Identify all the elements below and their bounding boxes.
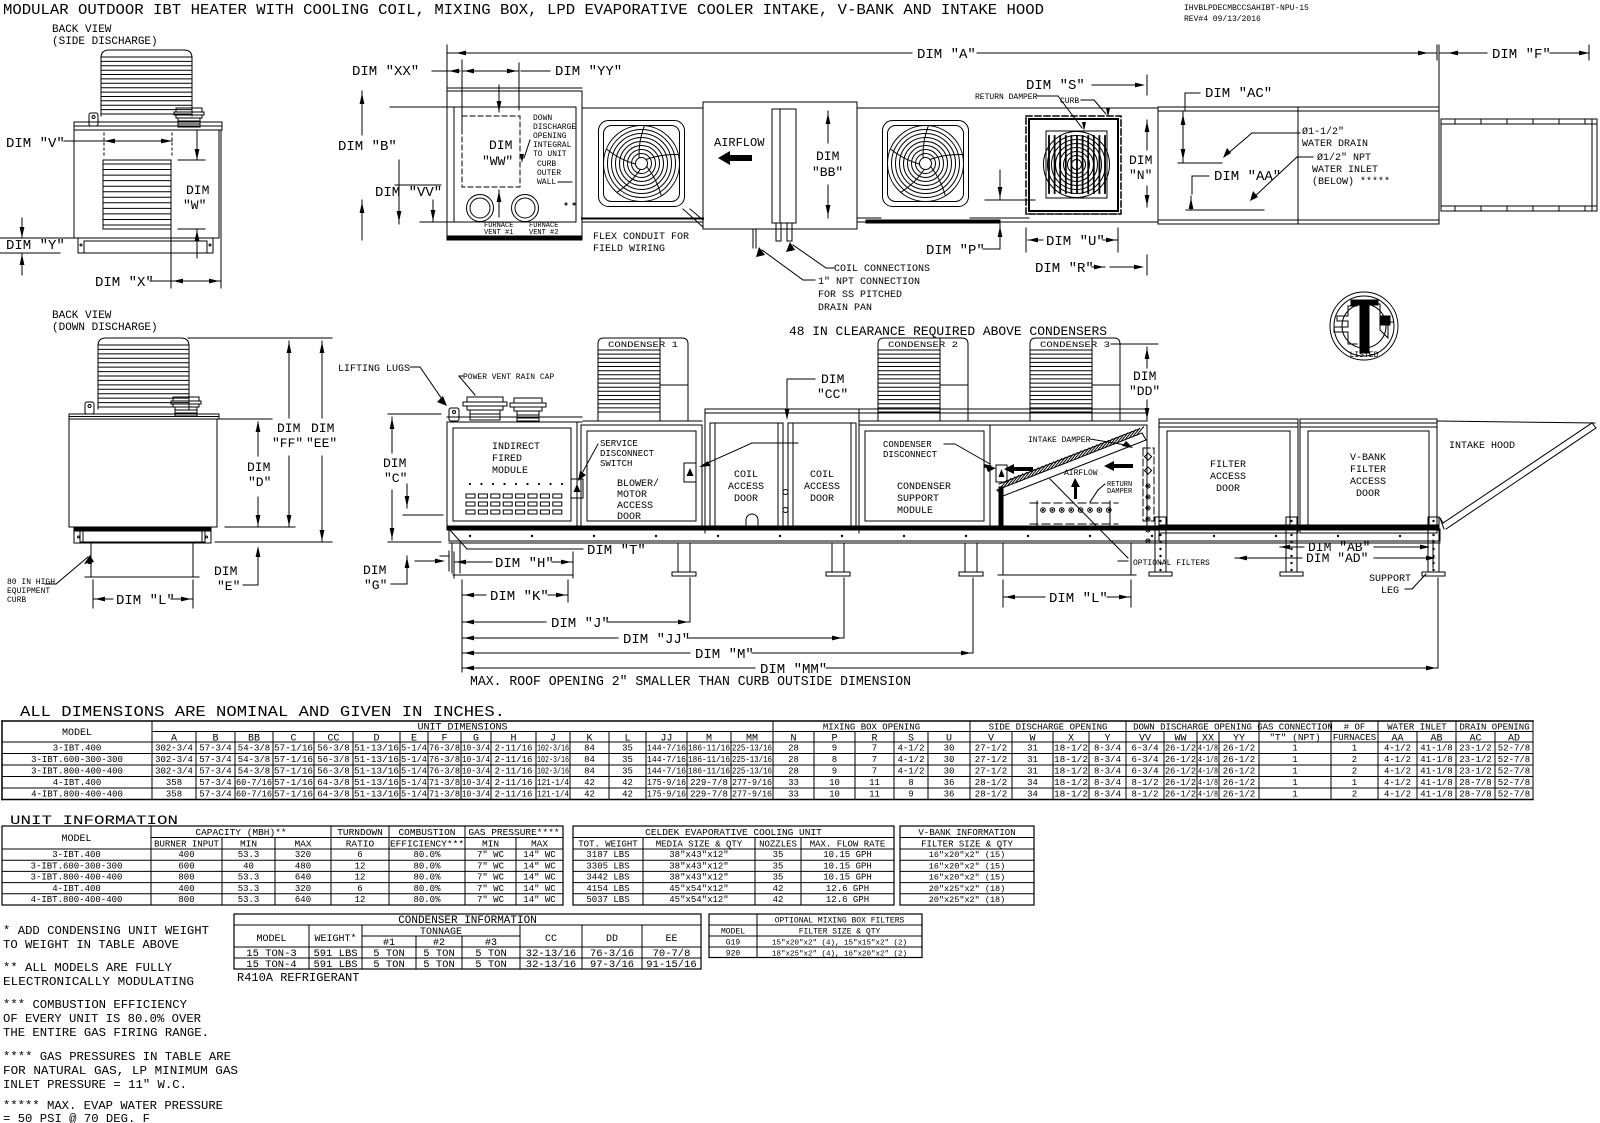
svg-text:DIM "S": DIM "S": [1026, 78, 1085, 94]
svg-text:TONNAGE: TONNAGE: [420, 927, 462, 938]
svg-text:26-1/2: 26-1/2: [1165, 744, 1196, 754]
svg-text:DOOR: DOOR: [734, 494, 758, 505]
svg-text:32-13/16: 32-13/16: [526, 959, 576, 971]
svg-text:TOT. WEIGHT: TOT. WEIGHT: [578, 840, 638, 850]
svg-text:FURNACES: FURNACES: [1333, 733, 1376, 743]
svg-text:"WW": "WW": [482, 154, 513, 169]
svg-text:600: 600: [178, 861, 194, 871]
svg-text:ALL DIMENSIONS ARE NOMINAL AND: ALL DIMENSIONS ARE NOMINAL AND GIVEN IN …: [20, 704, 505, 721]
svg-text:4-1/2: 4-1/2: [897, 744, 924, 754]
svg-text:5037 LBS: 5037 LBS: [586, 895, 629, 905]
svg-text:277-9/16: 277-9/16: [732, 790, 772, 800]
svg-text:DIM: DIM: [821, 372, 844, 387]
svg-text:91-15/16: 91-15/16: [646, 959, 696, 971]
svg-text:28-7/8: 28-7/8: [1459, 778, 1491, 788]
svg-text:"D": "D": [248, 475, 271, 490]
svg-text:53.3: 53.3: [238, 884, 260, 894]
svg-text:MEDIA SIZE & QTY: MEDIA SIZE & QTY: [656, 840, 743, 850]
svg-text:SERVICE: SERVICE: [600, 439, 638, 449]
svg-text:= 50 PSI @ 70 DEG. F: = 50 PSI @ 70 DEG. F: [3, 1112, 150, 1123]
svg-text:51-13/16: 51-13/16: [354, 778, 399, 788]
svg-text:DIM "P": DIM "P": [926, 243, 985, 259]
svg-text:57-1/16: 57-1/16: [274, 744, 313, 754]
svg-text:54-3/8: 54-3/8: [238, 767, 270, 777]
svg-text:V-BANK: V-BANK: [1350, 453, 1386, 464]
svg-text:DIM "L": DIM "L": [1049, 591, 1108, 607]
svg-text:WATER INLET: WATER INLET: [1312, 165, 1378, 176]
svg-text:7" WC: 7" WC: [477, 895, 505, 905]
svg-text:52-7/8: 52-7/8: [1498, 755, 1530, 765]
svg-text:MIXING BOX OPENING: MIXING BOX OPENING: [823, 723, 920, 733]
svg-text:7: 7: [872, 767, 877, 777]
svg-text:DIM: DIM: [1129, 153, 1152, 168]
svg-text:640: 640: [295, 895, 311, 905]
svg-text:51-13/16: 51-13/16: [354, 767, 399, 777]
svg-text:8: 8: [832, 755, 837, 765]
svg-text:GAS PRESSURE****: GAS PRESSURE****: [468, 827, 559, 838]
svg-text:FILTER SIZE & QTY: FILTER SIZE & QTY: [799, 928, 881, 937]
svg-text:4-1/2: 4-1/2: [1384, 744, 1411, 754]
svg-text:DIM "JJ": DIM "JJ": [623, 632, 690, 648]
svg-text:320: 320: [295, 884, 311, 894]
svg-text:4154 LBS: 4154 LBS: [586, 884, 629, 894]
svg-text:DRAIN PAN: DRAIN PAN: [818, 303, 872, 314]
svg-text:52-7/8: 52-7/8: [1498, 778, 1530, 788]
svg-text:28: 28: [788, 755, 799, 765]
svg-text:26-1/2: 26-1/2: [1165, 778, 1196, 788]
svg-text:**** GAS PRESSURES IN TABLE AR: **** GAS PRESSURES IN TABLE ARE: [3, 1050, 231, 1064]
svg-text:52-7/8: 52-7/8: [1498, 744, 1530, 754]
svg-text:R410A REFRIGERANT: R410A REFRIGERANT: [237, 971, 359, 985]
svg-text:800: 800: [178, 873, 194, 883]
svg-text:229-7/8: 229-7/8: [690, 790, 728, 800]
svg-text:57-1/16: 57-1/16: [274, 778, 313, 788]
svg-text:DIM "VV": DIM "VV": [375, 185, 442, 201]
svg-text:40: 40: [243, 861, 254, 871]
svg-text:28-1/2: 28-1/2: [975, 778, 1007, 788]
svg-text:3-IBT.800-400-400: 3-IBT.800-400-400: [31, 873, 123, 883]
svg-text:"W": "W": [183, 198, 206, 213]
svg-text:AIRFLOW: AIRFLOW: [714, 136, 765, 150]
svg-text:18-1/2: 18-1/2: [1054, 778, 1088, 788]
svg-text:56-3/8: 56-3/8: [317, 744, 349, 754]
svg-text:186-11/16: 186-11/16: [688, 767, 730, 777]
svg-text:"G": "G": [364, 578, 387, 593]
svg-text:57-1/16: 57-1/16: [274, 767, 313, 777]
svg-text:LISTED: LISTED: [1350, 351, 1379, 360]
svg-text:71-3/8: 71-3/8: [429, 790, 460, 800]
svg-text:18-1/2: 18-1/2: [1054, 755, 1088, 765]
svg-text:56-3/8: 56-3/8: [317, 767, 349, 777]
svg-text:4-1/2: 4-1/2: [897, 755, 924, 765]
svg-text:CURB: CURB: [1060, 97, 1079, 106]
svg-text:AIRFLOW: AIRFLOW: [1064, 469, 1098, 478]
svg-text:COIL: COIL: [810, 470, 834, 481]
svg-text:51-13/16: 51-13/16: [354, 744, 399, 754]
svg-text:DIM: DIM: [1133, 369, 1156, 384]
svg-text:8-1/2: 8-1/2: [1131, 778, 1158, 788]
svg-text:MODULE: MODULE: [492, 466, 528, 477]
svg-text:41-1/8: 41-1/8: [1420, 744, 1452, 754]
svg-text:MAX. ROOF OPENING 2" SMALLER T: MAX. ROOF OPENING 2" SMALLER THAN CURB O…: [470, 674, 911, 690]
svg-text:WATER INLET: WATER INLET: [1387, 723, 1447, 733]
svg-text:33: 33: [788, 778, 799, 788]
svg-text:10: 10: [829, 790, 840, 800]
svg-text:4-1/2: 4-1/2: [1384, 767, 1411, 777]
svg-text:80.0%: 80.0%: [413, 861, 441, 871]
svg-text:DIM: DIM: [489, 138, 512, 153]
svg-text:REV#4 09/13/2016: REV#4 09/13/2016: [1184, 15, 1261, 24]
svg-text:4-1/2: 4-1/2: [1384, 790, 1411, 800]
svg-text:10-3/4: 10-3/4: [462, 744, 490, 754]
svg-text:OF EVERY UNIT IS 80.0% OVER: OF EVERY UNIT IS 80.0% OVER: [3, 1012, 201, 1026]
svg-text:DOOR: DOOR: [1356, 489, 1380, 500]
svg-text:34: 34: [1027, 790, 1038, 800]
svg-text:1" NPT CONNECTION: 1" NPT CONNECTION: [818, 276, 920, 288]
svg-text:FILTER: FILTER: [1210, 460, 1246, 471]
svg-text:DIM "F": DIM "F": [1492, 47, 1551, 63]
svg-text:71-3/8: 71-3/8: [429, 778, 460, 788]
svg-text:14" WC: 14" WC: [523, 884, 556, 894]
svg-text:6: 6: [357, 850, 362, 860]
svg-text:"CC": "CC": [817, 387, 848, 402]
svg-text:SIDE DISCHARGE OPENING: SIDE DISCHARGE OPENING: [989, 723, 1108, 733]
svg-text:CC: CC: [545, 934, 557, 945]
svg-text:7" WC: 7" WC: [477, 884, 505, 894]
svg-text:DIM "U": DIM "U": [1046, 234, 1105, 250]
svg-text:2: 2: [1352, 767, 1357, 777]
svg-text:DIM "XX": DIM "XX": [352, 64, 419, 80]
svg-text:42: 42: [773, 895, 784, 905]
svg-text:5-1/4: 5-1/4: [401, 755, 427, 765]
svg-text:8-3/4: 8-3/4: [1094, 744, 1121, 754]
svg-text:28-7/8: 28-7/8: [1459, 790, 1491, 800]
svg-text:EFFICIENCY***: EFFICIENCY***: [390, 839, 464, 850]
svg-text:1: 1: [1292, 744, 1297, 754]
svg-text:5 TON: 5 TON: [423, 959, 455, 971]
svg-text:10: 10: [829, 778, 840, 788]
svg-text:41-1/8: 41-1/8: [1420, 755, 1452, 765]
svg-text:121-1/4: 121-1/4: [537, 778, 569, 788]
svg-text:DD: DD: [606, 934, 618, 945]
svg-text:SUPPORT: SUPPORT: [1369, 574, 1411, 585]
svg-text:97-3/16: 97-3/16: [590, 959, 634, 971]
svg-text:DOOR: DOOR: [617, 512, 641, 523]
svg-text:144-7/16: 144-7/16: [647, 755, 686, 765]
svg-text:18"x25"x2" (4), 16"x20"x2" (2): 18"x25"x2" (4), 16"x20"x2" (2): [772, 951, 907, 959]
svg-text:30: 30: [944, 755, 955, 765]
svg-text:12: 12: [355, 861, 366, 871]
svg-text:26-1/2: 26-1/2: [1165, 755, 1196, 765]
svg-text:DIM "Y": DIM "Y": [6, 238, 65, 254]
svg-text:7: 7: [872, 744, 877, 754]
svg-text:ACCESS: ACCESS: [804, 482, 840, 493]
svg-text:8-3/4: 8-3/4: [1094, 790, 1121, 800]
svg-text:42: 42: [773, 884, 784, 894]
svg-text:4-1/8: 4-1/8: [1198, 778, 1218, 788]
svg-text:15 TON-4: 15 TON-4: [246, 959, 296, 971]
svg-text:302-3/4: 302-3/4: [155, 744, 193, 754]
svg-text:9: 9: [832, 767, 837, 777]
svg-text:DIM "T": DIM "T": [587, 543, 646, 559]
svg-text:DIM "R": DIM "R": [1035, 261, 1094, 277]
svg-text:12: 12: [355, 895, 366, 905]
svg-text:3-IBT.800-400-400: 3-IBT.800-400-400: [31, 767, 123, 777]
svg-text:EQUIPMENT: EQUIPMENT: [7, 587, 50, 596]
svg-text:45"x54"x12": 45"x54"x12": [669, 895, 728, 905]
svg-text:80.0%: 80.0%: [413, 895, 441, 905]
svg-text:27-1/2: 27-1/2: [975, 767, 1007, 777]
svg-text:33: 33: [788, 790, 799, 800]
svg-text:2-11/16: 2-11/16: [495, 767, 533, 777]
svg-text:4-1/2: 4-1/2: [897, 767, 924, 777]
svg-text:225-13/16: 225-13/16: [732, 767, 772, 777]
svg-text:358: 358: [166, 778, 182, 788]
svg-text:GAS CONNECTION: GAS CONNECTION: [1257, 723, 1333, 733]
svg-text:35: 35: [622, 755, 633, 765]
svg-text:DIM "A": DIM "A": [917, 47, 976, 63]
svg-text:OPENING: OPENING: [533, 132, 567, 141]
svg-text:320: 320: [295, 850, 311, 860]
svg-text:26-1/2: 26-1/2: [1223, 744, 1255, 754]
svg-text:DIM: DIM: [214, 564, 237, 579]
svg-text:DOOR: DOOR: [810, 494, 834, 505]
svg-text:2-11/16: 2-11/16: [495, 790, 533, 800]
svg-text:14" WC: 14" WC: [523, 873, 556, 883]
svg-text:COIL CONNECTIONS: COIL CONNECTIONS: [834, 264, 930, 275]
svg-text:10.15 GPH: 10.15 GPH: [823, 861, 872, 871]
svg-text:480: 480: [295, 861, 311, 871]
svg-text:144-7/16: 144-7/16: [647, 744, 686, 754]
svg-text:OPTIONAL FILTERS: OPTIONAL FILTERS: [1133, 559, 1210, 568]
svg-text:ACCESS: ACCESS: [617, 501, 653, 512]
svg-text:CONDENSER 3: CONDENSER 3: [1040, 341, 1110, 350]
svg-text:144-7/16: 144-7/16: [647, 767, 686, 777]
svg-text:CONDENSER 1: CONDENSER 1: [608, 341, 678, 350]
svg-text:ACCESS: ACCESS: [1350, 477, 1386, 488]
svg-text:COIL: COIL: [734, 470, 758, 481]
svg-text:DIM "J": DIM "J": [551, 616, 610, 632]
svg-text:35: 35: [622, 767, 633, 777]
svg-text:DAMPER: DAMPER: [1107, 488, 1133, 496]
svg-text:MODEL: MODEL: [721, 928, 745, 937]
svg-text:MAX: MAX: [294, 839, 311, 850]
svg-text:DOWN DISCHARGE OPENING: DOWN DISCHARGE OPENING: [1133, 723, 1252, 733]
svg-text:41-1/8: 41-1/8: [1420, 767, 1452, 777]
svg-text:35: 35: [773, 873, 784, 883]
svg-text:TO UNIT: TO UNIT: [533, 150, 567, 159]
svg-text:80.0%: 80.0%: [413, 884, 441, 894]
svg-text:RETURN DAMPER: RETURN DAMPER: [975, 93, 1038, 102]
svg-text:640: 640: [295, 873, 311, 883]
svg-text:4-1/2: 4-1/2: [1384, 778, 1411, 788]
svg-text:80.0%: 80.0%: [413, 873, 441, 883]
svg-text:15"x20"x2" (4), 15"x15"x2" (2): 15"x20"x2" (4), 15"x15"x2" (2): [772, 940, 907, 948]
svg-text:DIM "AD": DIM "AD": [1306, 551, 1368, 566]
svg-text:5-1/4: 5-1/4: [401, 767, 427, 777]
svg-text:MAX. FLOW RATE: MAX. FLOW RATE: [810, 840, 886, 850]
svg-text:FILTER: FILTER: [1350, 465, 1386, 476]
svg-text:TURNDOWN: TURNDOWN: [337, 827, 383, 838]
svg-text:FOR SS PITCHED: FOR SS PITCHED: [818, 290, 902, 301]
svg-text:BLOWER/: BLOWER/: [617, 478, 659, 490]
svg-text:4-1/2: 4-1/2: [1384, 755, 1411, 765]
svg-text:UNIT DIMENSIONS: UNIT DIMENSIONS: [417, 723, 507, 734]
svg-text:84: 84: [584, 767, 595, 777]
svg-text:Ø1-1/2": Ø1-1/2": [1302, 126, 1344, 138]
svg-text:4-IBT.400: 4-IBT.400: [52, 884, 101, 894]
svg-text:11: 11: [869, 778, 880, 788]
svg-text:2: 2: [1352, 755, 1357, 765]
svg-text:53.3: 53.3: [238, 850, 260, 860]
svg-text:DIM "H": DIM "H": [495, 556, 554, 572]
svg-text:23-1/2: 23-1/2: [1459, 755, 1491, 765]
svg-text:36: 36: [944, 790, 955, 800]
svg-text:57-1/16: 57-1/16: [274, 755, 313, 765]
svg-text:3-IBT.400: 3-IBT.400: [53, 744, 102, 754]
svg-text:DIM "L": DIM "L": [116, 593, 175, 609]
svg-text:60-7/16: 60-7/16: [236, 778, 272, 788]
svg-text:53.3: 53.3: [238, 895, 260, 905]
svg-text:BACK VIEW: BACK VIEW: [52, 310, 112, 322]
svg-text:36: 36: [944, 778, 955, 788]
svg-text:4-1/8: 4-1/8: [1198, 744, 1218, 754]
svg-text:31: 31: [1027, 744, 1038, 754]
svg-text:26-1/2: 26-1/2: [1223, 778, 1255, 788]
svg-text:WEIGHT*: WEIGHT*: [314, 933, 356, 945]
svg-text:5 TON: 5 TON: [475, 959, 507, 971]
svg-text:57-3/4: 57-3/4: [199, 744, 231, 754]
svg-text:MODEL: MODEL: [62, 728, 92, 739]
svg-text:FOR NATURAL GAS, LP MINIMUM G: FOR NATURAL GAS, LP MINIMUM GAS: [3, 1064, 238, 1078]
svg-text:4-1/8: 4-1/8: [1198, 755, 1218, 765]
svg-text:5 TON: 5 TON: [373, 959, 405, 971]
svg-text:41-1/8: 41-1/8: [1420, 778, 1452, 788]
svg-text:26-1/2: 26-1/2: [1223, 767, 1255, 777]
svg-text:SUPPORT: SUPPORT: [897, 494, 939, 505]
svg-text:DOWN: DOWN: [533, 114, 552, 123]
svg-text:229-7/8: 229-7/8: [690, 778, 728, 788]
svg-text:8-3/4: 8-3/4: [1094, 755, 1121, 765]
svg-text:48 IN CLEARANCE REQUIRED ABOVE: 48 IN CLEARANCE REQUIRED ABOVE CONDENSER…: [789, 324, 1107, 339]
svg-text:102-3/16: 102-3/16: [537, 744, 569, 754]
svg-text:EE: EE: [665, 934, 677, 945]
svg-text:6-3/4: 6-3/4: [1131, 744, 1158, 754]
svg-text:45"x54"x12": 45"x54"x12": [669, 884, 728, 894]
svg-text:FILTER SIZE & QTY: FILTER SIZE & QTY: [921, 840, 1013, 850]
svg-text:42: 42: [622, 778, 633, 788]
svg-text:591 LBS: 591 LBS: [313, 959, 357, 971]
svg-text:3-IBT.600-300-300: 3-IBT.600-300-300: [31, 861, 123, 871]
svg-text:31: 31: [1027, 755, 1038, 765]
svg-text:23-1/2: 23-1/2: [1459, 744, 1491, 754]
svg-text:BURNER INPUT: BURNER INPUT: [154, 840, 219, 850]
svg-text:WATER DRAIN: WATER DRAIN: [1302, 139, 1368, 150]
svg-text:OPTIONAL MIXING BOX FILTERS: OPTIONAL MIXING BOX FILTERS: [775, 917, 905, 926]
svg-text:3-IBT.600-300-300: 3-IBT.600-300-300: [31, 755, 123, 765]
svg-text:BACK VIEW: BACK VIEW: [52, 24, 112, 36]
svg-text:DIM "M": DIM "M": [695, 647, 754, 663]
svg-text:***** MAX. EVAP WATER PRESSURE: ***** MAX. EVAP WATER PRESSURE: [3, 1099, 223, 1113]
svg-text:27-1/2: 27-1/2: [975, 755, 1007, 765]
svg-text:TO WEIGHT IN TABLE ABOVE: TO WEIGHT IN TABLE ABOVE: [3, 938, 179, 952]
svg-text:10-3/4: 10-3/4: [462, 778, 490, 788]
svg-text:35: 35: [622, 744, 633, 754]
svg-text:84: 84: [584, 744, 595, 754]
svg-text:V-BANK INFORMATION: V-BANK INFORMATION: [918, 828, 1015, 838]
svg-text:"FF": "FF": [272, 436, 303, 451]
svg-text:358: 358: [166, 790, 182, 800]
svg-text:2-11/16: 2-11/16: [495, 778, 533, 788]
svg-text:14" WC: 14" WC: [523, 895, 556, 905]
svg-text:400: 400: [178, 850, 194, 860]
svg-text:6-3/4: 6-3/4: [1131, 767, 1158, 777]
svg-text:41-1/8: 41-1/8: [1420, 790, 1452, 800]
svg-text:(SIDE DISCHARGE): (SIDE DISCHARGE): [52, 36, 158, 48]
svg-text:57-3/4: 57-3/4: [199, 778, 231, 788]
svg-text:26-1/2: 26-1/2: [1165, 767, 1196, 777]
svg-text:CAPACITY (MBH)**: CAPACITY (MBH)**: [195, 827, 286, 838]
svg-text:DIM: DIM: [247, 460, 270, 475]
svg-text:38"x43"x12": 38"x43"x12": [669, 850, 728, 860]
svg-text:ELECTRONICALLY MODULATING: ELECTRONICALLY MODULATING: [3, 975, 194, 989]
svg-text:16"x20"x2" (15): 16"x20"x2" (15): [929, 873, 1006, 883]
svg-text:84: 84: [584, 755, 595, 765]
svg-text:35: 35: [773, 861, 784, 871]
svg-text:80 IN HIGH: 80 IN HIGH: [7, 578, 55, 587]
svg-text:102-3/16: 102-3/16: [537, 767, 569, 777]
svg-text:10-3/4: 10-3/4: [462, 755, 490, 765]
svg-text:MIN: MIN: [240, 839, 257, 850]
svg-text:10.15 GPH: 10.15 GPH: [823, 850, 872, 860]
svg-text:7" WC: 7" WC: [477, 861, 505, 871]
svg-text:Ø1/2" NPT: Ø1/2" NPT: [1317, 152, 1371, 164]
svg-text:10-3/4: 10-3/4: [462, 790, 490, 800]
svg-text:302-3/4: 302-3/4: [155, 755, 193, 765]
svg-text:54-3/8: 54-3/8: [238, 744, 270, 754]
svg-text:28-1/2: 28-1/2: [975, 790, 1007, 800]
svg-text:DIM: DIM: [311, 421, 334, 436]
svg-text:4-1/8: 4-1/8: [1198, 790, 1218, 800]
svg-text:60-7/16: 60-7/16: [236, 790, 272, 800]
svg-text:* ADD CONDENSING UNIT WEIGHT: * ADD CONDENSING UNIT WEIGHT: [3, 924, 209, 938]
svg-text:DISCHARGE: DISCHARGE: [533, 123, 576, 132]
svg-text:LEG: LEG: [1381, 586, 1399, 597]
svg-text:8: 8: [908, 778, 913, 788]
svg-text:7: 7: [872, 755, 877, 765]
svg-text:57-3/4: 57-3/4: [199, 767, 231, 777]
svg-text:30: 30: [944, 744, 955, 754]
svg-text:RATIO: RATIO: [346, 839, 375, 850]
svg-text:OUTER: OUTER: [537, 169, 561, 178]
svg-text:VENT #2: VENT #2: [529, 229, 558, 237]
svg-text:225-13/16: 225-13/16: [732, 744, 772, 754]
svg-text:800: 800: [178, 895, 194, 905]
svg-text:MIN: MIN: [482, 839, 499, 850]
svg-text:DIM: DIM: [277, 421, 300, 436]
svg-text:30: 30: [944, 767, 955, 777]
svg-text:186-11/16: 186-11/16: [688, 755, 730, 765]
svg-text:102-3/16: 102-3/16: [537, 755, 569, 765]
svg-text:SWITCH: SWITCH: [600, 459, 632, 469]
svg-text:3305 LBS: 3305 LBS: [586, 861, 629, 871]
svg-text:2: 2: [1352, 790, 1357, 800]
svg-text:9: 9: [908, 790, 913, 800]
svg-text:6-3/4: 6-3/4: [1131, 755, 1158, 765]
svg-text:COMBUSTION: COMBUSTION: [398, 827, 455, 838]
svg-text:ACCESS: ACCESS: [728, 482, 764, 493]
svg-text:57-3/4: 57-3/4: [199, 755, 231, 765]
